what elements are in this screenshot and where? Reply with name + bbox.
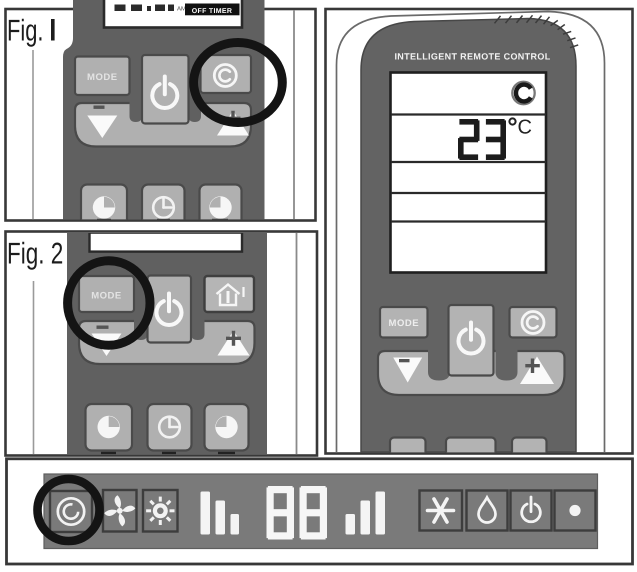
svg-text:INTELLIGENT REMOTE CONTROL: INTELLIGENT REMOTE CONTROL [394,52,550,62]
svg-text:MODE: MODE [91,291,122,302]
svg-text:MODE: MODE [389,318,420,329]
svg-text:Fig.: Fig. [7,15,44,48]
svg-text:C: C [518,117,532,139]
svg-text:Fig. 2: Fig. 2 [7,238,63,271]
svg-text:AM: AM [177,6,186,13]
svg-text:MODE: MODE [87,72,118,83]
svg-text:OFF TIMER: OFF TIMER [192,8,232,15]
